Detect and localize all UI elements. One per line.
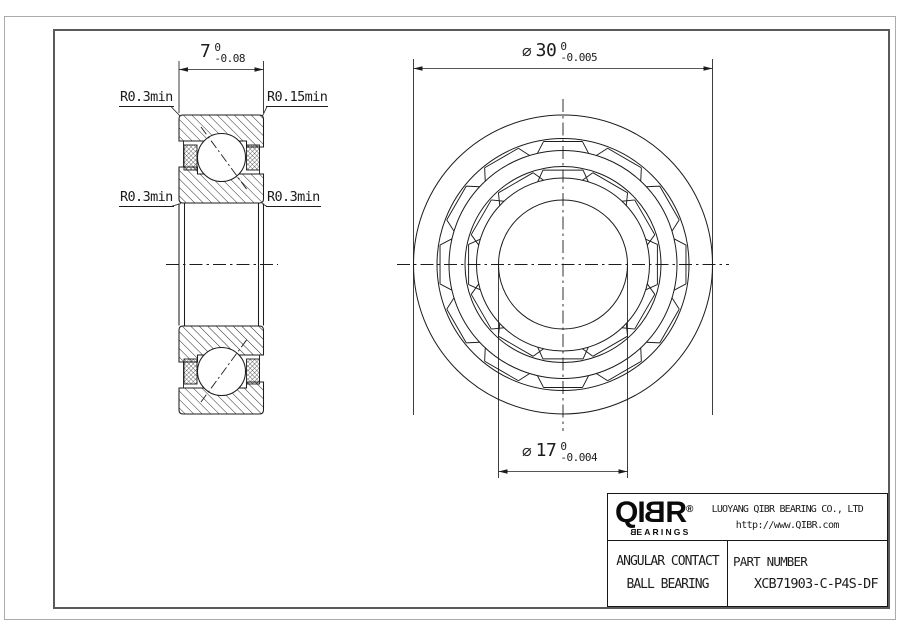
fillet-label-bottom-left: R0.3min	[119, 190, 174, 207]
logo-wordmark: QIBR®	[615, 497, 712, 526]
diameter-symbol: ⌀	[522, 41, 532, 60]
bearing-type-cell: ANGULAR CONTACT BALL BEARING	[608, 541, 728, 606]
width-value: 7	[200, 42, 210, 61]
title-block: QIBR® BEARINGS LUOYANG QIBR BEARING CO.,…	[607, 493, 888, 607]
page-root: { "section_view": { "dim_width": {"value…	[0, 0, 900, 636]
registered-mark: ®	[686, 504, 693, 515]
diameter-symbol: ⌀	[522, 441, 532, 460]
outer-diameter-tolerance: 0 -0.005	[560, 41, 597, 64]
width-tolerance: 0 -0.08	[214, 42, 245, 65]
bearing-type-line2: BALL BEARING	[608, 573, 727, 596]
part-number-label: PART NUMBER	[733, 550, 887, 573]
part-number-cell: PART NUMBER XCB71903-C-P4S-DF	[728, 541, 887, 606]
fillet-label-top-right: R0.15min	[266, 90, 328, 107]
section-view	[166, 115, 278, 414]
fillet-label-top-left: R0.3min	[119, 90, 174, 107]
outer-diameter-dimension-text: ⌀ 30 0 -0.005	[522, 41, 597, 64]
brand-logo: QIBR® BEARINGS	[608, 494, 712, 540]
title-block-detail-row: ANGULAR CONTACT BALL BEARING PART NUMBER…	[608, 541, 887, 606]
logo-subtext: BEARINGS	[628, 527, 712, 537]
front-view	[397, 99, 729, 431]
title-block-header-row: QIBR® BEARINGS LUOYANG QIBR BEARING CO.,…	[608, 494, 887, 541]
company-name: LUOYANG QIBR BEARING CO., LTD	[712, 504, 863, 515]
company-website: http://www.QIBR.com	[736, 520, 839, 531]
width-dimension-text: 7 0 -0.08	[200, 42, 245, 65]
fillet-label-bottom-right: R0.3min	[266, 190, 321, 207]
bearing-type-line1: ANGULAR CONTACT	[608, 550, 727, 573]
part-number-value: XCB71903-C-P4S-DF	[754, 573, 887, 596]
bore-diameter-tolerance: 0 -0.004	[560, 441, 597, 464]
company-info-cell: LUOYANG QIBR BEARING CO., LTD http://www…	[712, 494, 887, 540]
bore-diameter-dimension-text: ⌀ 17 0 -0.004	[522, 441, 597, 464]
